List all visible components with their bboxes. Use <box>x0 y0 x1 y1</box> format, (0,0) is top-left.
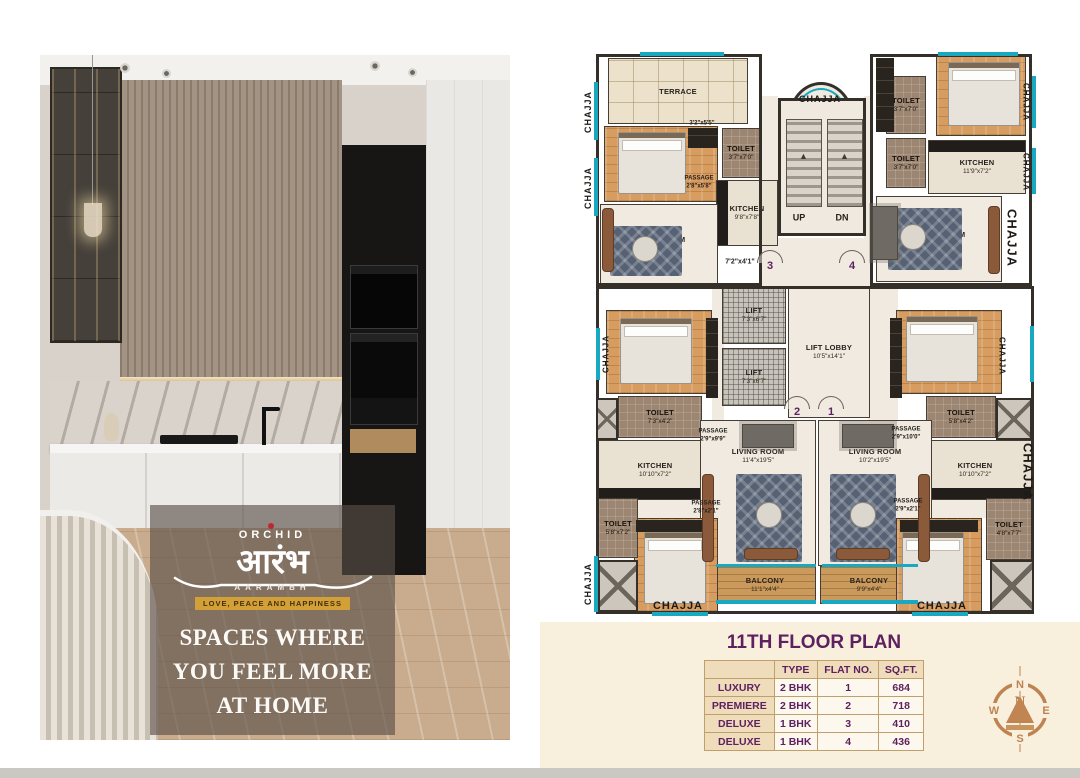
table-cell: 718 <box>879 697 924 715</box>
dining <box>742 424 794 448</box>
table-cell: 2 BHK <box>774 679 817 697</box>
dining <box>872 206 898 260</box>
chajja-strip <box>594 158 598 216</box>
flat-number: 4 <box>849 260 855 272</box>
compass-w: W <box>989 705 1000 717</box>
room-toilet: TOILET5'8"x7'2" <box>598 498 638 558</box>
rtable <box>900 224 926 250</box>
ward <box>900 520 978 532</box>
plan-label: PASSAGE2'9"x10'0" <box>892 427 921 442</box>
plan-label: DN <box>836 212 849 223</box>
plan-label: 3'2"x5'5" <box>689 120 714 128</box>
sofa <box>918 474 930 562</box>
chajja-label: CHAJJA <box>583 91 593 133</box>
chajja-strip <box>912 612 968 616</box>
room-toilet: TOILET3'7"x7'0" <box>722 128 760 178</box>
chajja-strip <box>716 600 816 604</box>
chajja-label: CHAJJA <box>1005 209 1020 267</box>
sofa <box>702 474 714 562</box>
table-row: LUXURY 2 BHK 1 684 <box>705 679 924 697</box>
chajja-strip <box>594 556 598 612</box>
room-kitchen: KITCHEN11'9"x7'2" <box>928 140 1026 194</box>
brochure-page: ORCHID आरंभ AARAMBH LOVE, PEACE AND HAPP… <box>0 0 1080 778</box>
duct <box>990 560 1034 612</box>
table-cell: 410 <box>879 715 924 733</box>
chajja-label: CHAJJA <box>1021 443 1036 501</box>
sofa <box>988 206 1000 274</box>
flat-number: 2 <box>794 406 800 418</box>
duct <box>996 398 1032 440</box>
table-cell: 436 <box>879 733 924 751</box>
sofa <box>744 548 798 560</box>
sofa <box>602 208 614 272</box>
chajja-strip <box>822 564 918 567</box>
ward <box>706 318 718 398</box>
duct <box>598 560 638 612</box>
rtable <box>850 502 876 528</box>
room-balcony: BALCONY11'1"x4'4" <box>714 566 816 604</box>
room-toilet: TOILET5'8"x4'2" <box>926 396 996 438</box>
table-header: FLAT NO. <box>817 661 878 679</box>
stair-arrow-icon: ▲ <box>799 151 808 161</box>
table-cell: DELUXE <box>705 733 775 751</box>
chajja-strip <box>1032 76 1036 128</box>
plan-label: PASSAGE2'8"x2'1" <box>692 501 721 516</box>
chajja-label: CHAJJA <box>583 563 593 605</box>
chajja-strip <box>1030 326 1034 382</box>
bed <box>618 132 686 194</box>
chajja-strip <box>938 52 1018 56</box>
bed <box>620 318 692 384</box>
plan-label: PASSAGE2'8"x5'8" <box>685 176 714 191</box>
table-cell: 1 <box>817 679 878 697</box>
table-header: SQ.FT. <box>879 661 924 679</box>
table-cell: PREMIERE <box>705 697 775 715</box>
chajja-label: CHAJJA <box>653 600 703 612</box>
room-kitchen: KITCHEN10'10"x7'2" <box>598 440 712 500</box>
table-cell: 3 <box>817 715 878 733</box>
room-lift: LIFT7'3"x6'7" <box>722 286 786 344</box>
table-cell: DELUXE <box>705 715 775 733</box>
room-toilet: TOILET7'3"x4'2" <box>618 396 702 438</box>
plan-label: PASSAGE2'9"x2'1" <box>894 499 923 514</box>
rtable <box>756 502 782 528</box>
ward <box>890 318 902 398</box>
table-cell: 2 BHK <box>774 697 817 715</box>
table-cell: 1 BHK <box>774 733 817 751</box>
chajja-strip <box>596 328 600 380</box>
table-header <box>705 661 775 679</box>
chajja-strip <box>640 52 724 56</box>
room-toilet: TOILET4'8"x7'7" <box>986 498 1032 560</box>
table-row: DELUXE 1 BHK 3 410 <box>705 715 924 733</box>
chajja-label: CHAJJA <box>583 167 593 209</box>
table-cell: 4 <box>817 733 878 751</box>
room-lift: LIFT7'3"x6'7" <box>722 348 786 406</box>
chajja-strip <box>594 82 598 140</box>
sofa <box>836 548 890 560</box>
chajja-label: CHAJJA <box>998 337 1007 375</box>
table-cell: LUXURY <box>705 679 775 697</box>
flat-number: 1 <box>828 406 834 418</box>
rtable <box>632 236 658 262</box>
flat-table: TYPE FLAT NO. SQ.FT. LUXURY 2 BHK 1 684 … <box>704 660 924 751</box>
compass-e: E <box>1042 705 1049 717</box>
table-row: DELUXE 1 BHK 4 436 <box>705 733 924 751</box>
chajja-label: CHAJJA <box>799 94 841 104</box>
plan-label: UP <box>793 212 806 223</box>
room-kitchen: KITCHEN9'8"x7'8" <box>716 180 778 246</box>
staircase: ▲ ▲ <box>778 98 866 236</box>
table-cell: 684 <box>879 679 924 697</box>
chajja-strip <box>1032 148 1036 194</box>
chajja-label: CHAJJA <box>1022 153 1031 191</box>
ward <box>688 128 718 148</box>
chajja-label: CHAJJA <box>602 335 611 373</box>
chajja-strip <box>652 612 708 616</box>
compass-s: S <box>1016 733 1023 745</box>
bed <box>902 532 964 604</box>
table-header: TYPE <box>774 661 817 679</box>
plan-label: PASSAGE2'9"x9'9" <box>699 429 728 444</box>
table-cell: 1 BHK <box>774 715 817 733</box>
compass-icon: N E S W N <box>985 666 1055 752</box>
ward <box>876 58 894 132</box>
bed <box>644 532 706 604</box>
chajja-strip <box>822 600 918 604</box>
duct <box>596 398 618 440</box>
chajja-strip <box>716 564 816 567</box>
table-row: PREMIERE 2 BHK 2 718 <box>705 697 924 715</box>
flat-number: 3 <box>767 260 773 272</box>
plan-label: 7'2"x4'1" <box>725 259 754 268</box>
table-cell: 2 <box>817 697 878 715</box>
room-kitchen: KITCHEN10'10"x7'2" <box>918 440 1032 500</box>
chajja-label: CHAJJA <box>1022 83 1031 121</box>
compass-n: N <box>1016 679 1024 691</box>
dining <box>842 424 894 448</box>
footer-bar <box>0 768 1080 778</box>
floor-plan-title: 11TH FLOOR PLAN <box>698 632 930 654</box>
chajja-label: CHAJJA <box>917 600 967 612</box>
bed <box>948 62 1020 126</box>
bed <box>906 316 978 382</box>
room-terrace: TERRACE <box>608 58 748 124</box>
north-arrow-icon <box>1006 696 1034 723</box>
room-toilet: TOILET3'7"x7'0" <box>886 138 926 188</box>
table-header-row: TYPE FLAT NO. SQ.FT. <box>705 661 924 679</box>
stair-arrow-icon: ▲ <box>840 151 849 161</box>
